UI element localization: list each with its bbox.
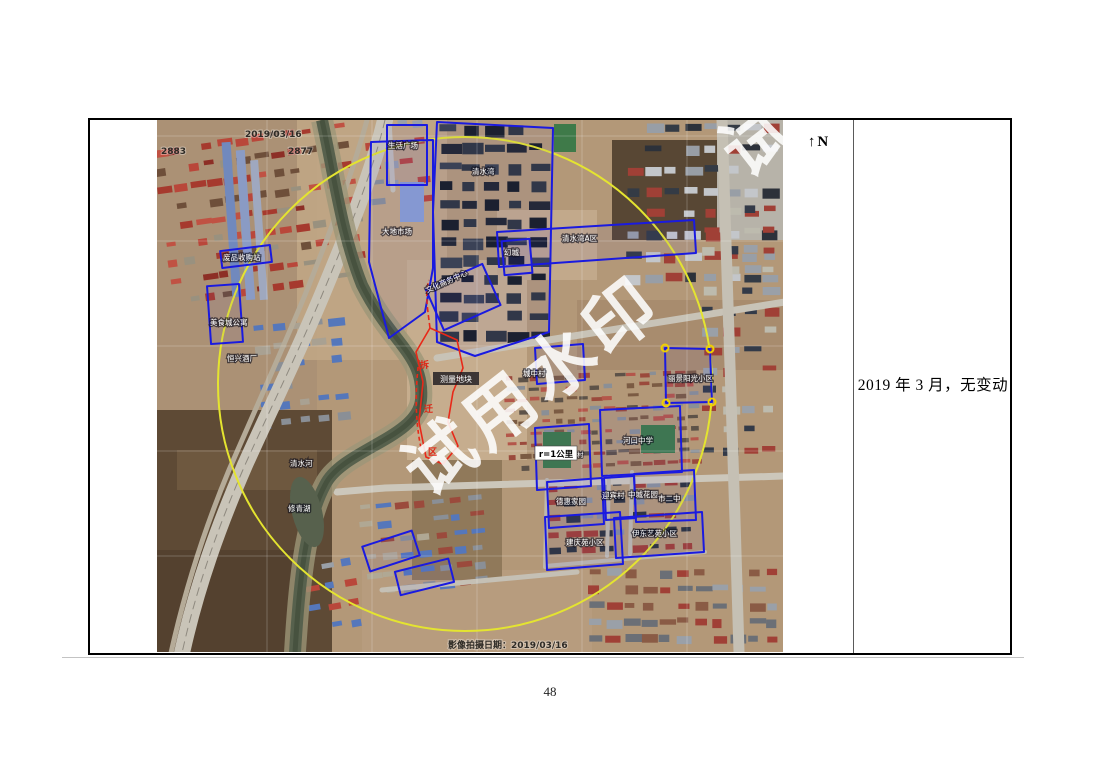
- building: [520, 454, 531, 459]
- building: [602, 396, 612, 400]
- building: [647, 209, 665, 217]
- site-label: 大地市场: [382, 226, 412, 236]
- building: [714, 636, 727, 644]
- building: [591, 397, 602, 401]
- table-column-divider: [853, 120, 854, 653]
- building: [690, 437, 698, 440]
- site-label: 中城花园: [628, 489, 658, 499]
- building: [255, 345, 271, 355]
- building: [318, 414, 329, 421]
- building: [705, 227, 720, 232]
- remark-text: 2019 年 3 月，无变动: [856, 373, 1010, 395]
- building: [578, 408, 588, 412]
- site-label: 丽景阳光小区: [668, 373, 713, 383]
- building: [745, 205, 756, 213]
- building: [713, 604, 727, 609]
- building: [643, 603, 654, 611]
- building: [665, 188, 679, 194]
- building: [589, 601, 604, 608]
- building: [607, 620, 623, 629]
- building: [767, 604, 777, 611]
- building: [660, 571, 672, 579]
- building: [763, 366, 777, 371]
- building: [607, 568, 622, 576]
- building: [642, 620, 658, 627]
- building: [340, 557, 351, 566]
- building: [473, 545, 483, 551]
- building: [706, 209, 716, 218]
- building: [274, 168, 285, 177]
- building: [678, 586, 693, 591]
- building: [678, 604, 689, 609]
- red-side-char: 拆: [420, 359, 429, 371]
- site-label: 废品收购站: [223, 252, 261, 262]
- site-label: 生活广场: [388, 140, 418, 150]
- school-label: 河口中学: [623, 435, 653, 445]
- building: [684, 211, 695, 217]
- building: [704, 188, 718, 196]
- building: [628, 188, 640, 197]
- building: [168, 259, 178, 267]
- building: [627, 383, 635, 388]
- building: [625, 603, 635, 608]
- building: [763, 267, 774, 273]
- building: [377, 520, 392, 529]
- building: [645, 167, 661, 176]
- building: [639, 381, 649, 385]
- building: [765, 308, 780, 317]
- building: [704, 274, 716, 281]
- building: [568, 419, 575, 424]
- building: [628, 168, 644, 176]
- building: [301, 416, 311, 423]
- river-label: 清水河: [290, 458, 313, 468]
- site-label: 幻城: [504, 247, 519, 257]
- building: [592, 441, 600, 445]
- building: [767, 569, 777, 575]
- building: [626, 634, 643, 642]
- building: [750, 587, 766, 592]
- building: [642, 634, 658, 643]
- building: [626, 585, 639, 594]
- building: [695, 619, 707, 626]
- building: [744, 275, 761, 283]
- building: [764, 206, 776, 212]
- building: [750, 618, 766, 623]
- building: [591, 430, 597, 434]
- building: [645, 275, 663, 284]
- building: [660, 619, 676, 624]
- building: [652, 383, 663, 387]
- building: [702, 247, 714, 256]
- building: [414, 500, 425, 508]
- building: [521, 466, 529, 471]
- page-number: 48: [0, 684, 1100, 700]
- building: [766, 620, 776, 629]
- red-side-char: 区: [428, 447, 437, 458]
- building: [666, 273, 683, 282]
- building: [338, 411, 352, 420]
- building: [744, 346, 761, 351]
- table-bottom-rule: [62, 657, 1024, 658]
- building: [696, 586, 713, 591]
- building: [745, 265, 762, 273]
- site-label: 市二中: [658, 493, 681, 503]
- building: [765, 327, 777, 333]
- site-label: 伊东艺苑小区: [632, 528, 677, 538]
- building: [273, 283, 285, 292]
- site-label: 德惠家园: [556, 496, 586, 506]
- building: [201, 142, 211, 150]
- building: [640, 373, 650, 378]
- building: [742, 254, 757, 262]
- building: [763, 189, 780, 199]
- building: [691, 426, 699, 431]
- document-page: 试用水印 试用水印 2019/03/16 2883 2877 生活广场 清水湾 …: [0, 0, 1100, 777]
- building: [624, 619, 641, 626]
- building: [763, 275, 779, 282]
- capture-date-top: 2019/03/16: [245, 130, 302, 140]
- site-label: 美食城公寓: [210, 317, 248, 327]
- building: [712, 619, 721, 628]
- building: [556, 419, 562, 424]
- building: [301, 241, 312, 250]
- building: [219, 270, 229, 278]
- building: [712, 585, 728, 591]
- building: [764, 248, 775, 254]
- capture-date-bottom: 影像拍摄日期：2019/03/16: [448, 639, 568, 651]
- site-label: 建庆苑小区: [566, 537, 604, 547]
- building: [665, 125, 679, 132]
- building: [650, 372, 656, 376]
- building: [590, 569, 601, 574]
- building: [603, 384, 612, 389]
- building: [689, 404, 700, 409]
- building: [509, 455, 516, 460]
- building: [643, 587, 657, 594]
- building: [685, 167, 703, 176]
- site-label: 清水湾A区: [562, 233, 598, 243]
- building: [659, 635, 670, 642]
- building: [300, 398, 310, 405]
- building: [742, 288, 752, 294]
- building: [742, 406, 755, 413]
- building: [696, 602, 709, 611]
- building: [198, 238, 208, 246]
- building: [704, 146, 715, 153]
- building: [214, 234, 223, 241]
- red-side-char: 迁: [424, 403, 433, 415]
- building: [184, 256, 196, 265]
- site-label: 清水湾: [472, 166, 495, 176]
- building: [157, 168, 166, 177]
- building: [686, 124, 702, 131]
- building: [744, 245, 758, 253]
- building: [647, 124, 665, 134]
- building: [702, 406, 716, 412]
- building: [188, 163, 199, 172]
- building: [686, 146, 699, 156]
- building: [395, 501, 410, 509]
- building: [684, 187, 697, 194]
- building: [419, 550, 432, 558]
- building: [704, 287, 717, 296]
- building: [647, 188, 662, 198]
- grid-number-left: 2883: [161, 147, 186, 157]
- red-parcel-label: 测量地块: [440, 374, 472, 384]
- building: [702, 328, 718, 337]
- building: [748, 636, 758, 642]
- radius-label: r=1公里: [539, 450, 574, 460]
- building: [605, 636, 620, 643]
- site-label: 城中村: [523, 368, 546, 378]
- north-arrow-label: ↑N: [808, 134, 830, 150]
- building: [451, 514, 460, 521]
- building: [660, 587, 670, 593]
- building: [281, 418, 291, 425]
- satellite-map-image[interactable]: 试用水印 试用水印 2019/03/16 2883 2877 生活广场 清水湾 …: [157, 120, 783, 652]
- building: [455, 546, 467, 555]
- north-indicator: ↑N: [786, 134, 852, 151]
- building: [253, 325, 263, 331]
- building: [763, 406, 773, 413]
- building: [645, 146, 662, 152]
- building: [688, 415, 698, 419]
- site-label: 迎宾村: [602, 490, 625, 500]
- building: [436, 532, 447, 539]
- building: [694, 569, 704, 575]
- building: [750, 603, 766, 611]
- building: [273, 323, 286, 331]
- building: [589, 619, 601, 625]
- grid-number-right: 2877: [288, 147, 313, 157]
- building: [331, 355, 342, 364]
- building: [767, 637, 777, 643]
- building: [607, 602, 623, 609]
- building: [383, 571, 394, 577]
- building: [615, 373, 626, 377]
- building: [677, 636, 692, 644]
- building: [744, 426, 754, 432]
- lake-label: 修青湖: [288, 503, 311, 513]
- building: [628, 393, 639, 396]
- site-label: 恒兴酒厂: [227, 353, 257, 363]
- building: [589, 635, 602, 641]
- building: [749, 570, 760, 577]
- building: [763, 227, 774, 233]
- building: [626, 373, 636, 376]
- building: [593, 463, 601, 468]
- building: [763, 287, 781, 295]
- building: [331, 338, 343, 347]
- building: [744, 228, 760, 234]
- building: [475, 561, 486, 569]
- building: [664, 167, 675, 174]
- building: [417, 533, 430, 541]
